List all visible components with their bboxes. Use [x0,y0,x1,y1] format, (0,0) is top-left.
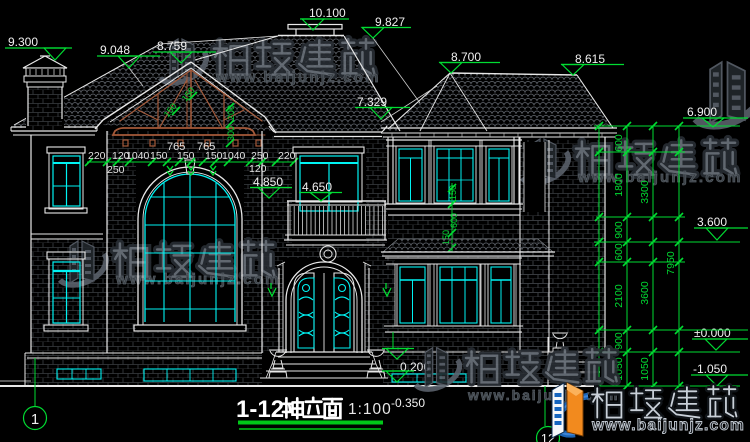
svg-text:900: 900 [613,221,625,239]
svg-text:1-12: 1-12 [236,396,284,423]
svg-text:200: 200 [226,105,236,120]
svg-text:8.759: 8.759 [157,39,187,53]
svg-text:1040: 1040 [126,150,150,162]
svg-text:600: 600 [613,134,625,152]
svg-text:150: 150 [150,150,168,162]
svg-text:10.100: 10.100 [309,6,346,20]
svg-text:-1.050: -1.050 [693,362,727,376]
svg-text:300: 300 [226,126,236,141]
svg-text:2100: 2100 [613,284,625,308]
svg-text:600: 600 [613,243,625,261]
svg-text:6.900: 6.900 [687,105,717,119]
svg-text:www.baijunjz.com: www.baijunjz.com [115,271,281,288]
svg-text:150: 150 [205,150,223,162]
svg-text:9.300: 9.300 [8,35,38,49]
svg-text:±0.000: ±0.000 [694,326,731,340]
svg-text:1040: 1040 [222,150,246,162]
svg-text:1: 1 [31,411,39,428]
svg-text:1800: 1800 [613,173,625,197]
svg-text:3600: 3600 [639,281,651,305]
svg-text:3300: 3300 [639,180,651,204]
svg-text:3.600: 3.600 [697,215,727,229]
svg-text:7950: 7950 [665,251,677,275]
svg-text:220: 220 [88,150,106,162]
svg-text:120: 120 [249,163,267,175]
svg-text:-0.350: -0.350 [391,396,425,410]
svg-text:www.baijunjz.com: www.baijunjz.com [591,417,745,434]
svg-text:600: 600 [449,213,459,228]
svg-text:1:100: 1:100 [348,401,392,418]
svg-text:250: 250 [251,150,269,162]
svg-text:250: 250 [107,164,125,176]
svg-text:150: 150 [177,150,195,162]
svg-text:9.048: 9.048 [100,43,130,57]
svg-text:www.baijunjz.com: www.baijunjz.com [577,169,743,186]
svg-text:150: 150 [448,185,458,200]
svg-text:900: 900 [613,332,625,350]
svg-text:www.baijunjz.com: www.baijunjz.com [215,69,381,86]
svg-text:1050: 1050 [639,357,651,381]
